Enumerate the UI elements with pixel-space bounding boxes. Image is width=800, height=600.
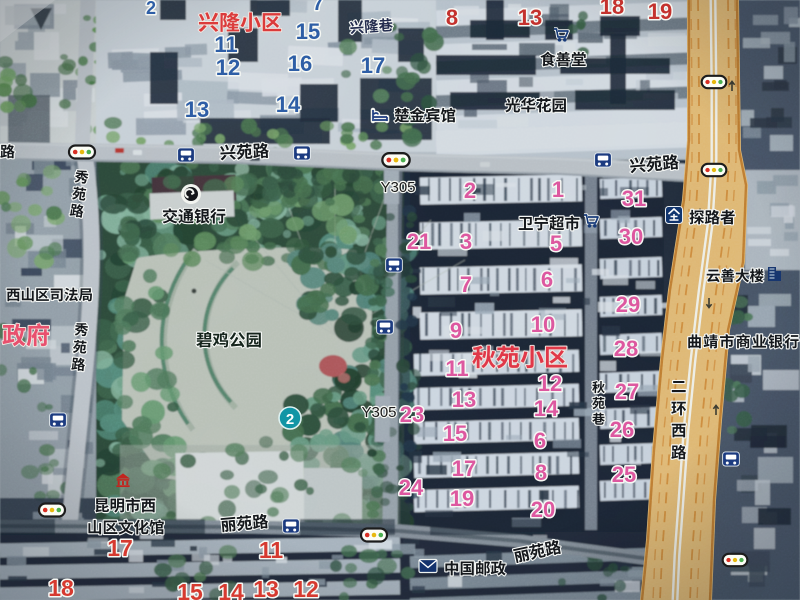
svg-text:15: 15: [296, 19, 320, 44]
svg-text:13: 13: [452, 387, 476, 412]
svg-text:2: 2: [146, 0, 156, 18]
svg-text:23: 23: [400, 402, 424, 427]
svg-text:12: 12: [216, 55, 240, 80]
svg-text:2: 2: [286, 411, 294, 428]
svg-text:8: 8: [535, 460, 547, 485]
svg-text:14: 14: [534, 396, 559, 421]
svg-text:13: 13: [253, 576, 279, 600]
svg-text:21: 21: [407, 229, 431, 254]
svg-text:14: 14: [276, 92, 301, 117]
svg-text:14: 14: [218, 579, 244, 600]
svg-text:Y305: Y305: [380, 179, 415, 196]
svg-text:Y305: Y305: [361, 404, 396, 421]
svg-text:19: 19: [450, 486, 474, 511]
svg-text:7: 7: [460, 272, 472, 297]
svg-text:12: 12: [538, 371, 562, 396]
svg-text:24: 24: [399, 475, 424, 500]
svg-text:11: 11: [214, 32, 237, 57]
svg-text:30: 30: [619, 224, 643, 249]
svg-text:20: 20: [531, 497, 555, 522]
svg-text:17: 17: [107, 535, 133, 561]
svg-text:29: 29: [616, 292, 640, 317]
svg-text:16: 16: [288, 51, 312, 76]
svg-text:13: 13: [185, 97, 209, 122]
svg-text:28: 28: [614, 336, 638, 361]
svg-text:12: 12: [293, 576, 319, 600]
svg-text:6: 6: [534, 428, 546, 453]
svg-text:18: 18: [600, 0, 624, 19]
svg-text:25: 25: [612, 462, 636, 487]
svg-text:9: 9: [450, 318, 462, 343]
svg-text:15: 15: [443, 421, 467, 446]
svg-text:2: 2: [464, 178, 476, 203]
svg-text:6: 6: [541, 267, 553, 292]
svg-text:27: 27: [615, 379, 639, 404]
svg-text:19: 19: [648, 0, 672, 24]
svg-text:17: 17: [361, 53, 385, 78]
svg-text:8: 8: [446, 5, 458, 30]
svg-text:11: 11: [445, 356, 468, 381]
svg-text:26: 26: [610, 417, 634, 442]
svg-text:17: 17: [452, 456, 476, 481]
svg-text:18: 18: [48, 575, 74, 600]
svg-text:15: 15: [177, 579, 203, 600]
svg-text:11: 11: [259, 537, 284, 563]
svg-text:1: 1: [552, 177, 564, 202]
svg-text:31: 31: [622, 186, 646, 211]
svg-text:7: 7: [312, 0, 323, 15]
svg-text:5: 5: [550, 231, 562, 256]
svg-text:3: 3: [460, 229, 472, 254]
svg-text:13: 13: [518, 5, 542, 30]
svg-text:10: 10: [531, 312, 555, 337]
